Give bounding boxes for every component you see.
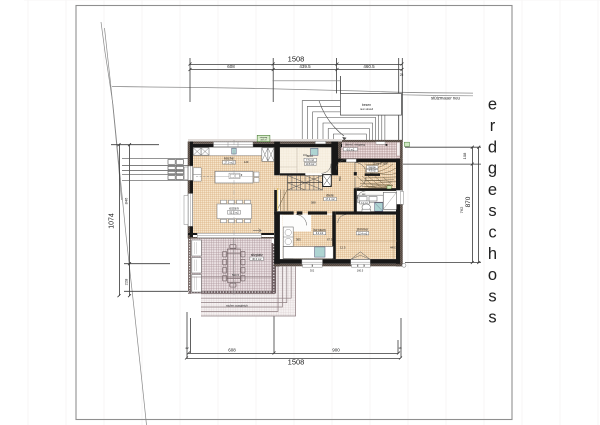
svg-text:4.9 m2: 4.9 m2 [369, 171, 377, 173]
svg-text:küche: küche [224, 157, 234, 161]
svg-text:ankl.: ankl. [307, 154, 314, 158]
svg-text:459.72: 459.72 [260, 140, 267, 142]
svg-text:s: s [488, 202, 496, 220]
svg-text:160.5: 160.5 [357, 269, 364, 273]
svg-text:treppe: treppe [369, 166, 377, 169]
svg-text:108: 108 [462, 152, 467, 159]
svg-text:900: 900 [332, 348, 340, 353]
svg-text:590.5: 590.5 [232, 273, 239, 277]
svg-text:608: 608 [227, 64, 235, 69]
svg-text:302: 302 [310, 269, 315, 273]
svg-text:870: 870 [465, 196, 472, 207]
svg-text:588: 588 [311, 200, 316, 204]
svg-text:raum abstell: raum abstell [360, 108, 373, 111]
svg-text:16: 16 [398, 346, 402, 350]
svg-text:überd. eingang: überd. eingang [345, 143, 365, 147]
svg-text:10.8 m2: 10.8 m2 [306, 163, 315, 166]
svg-text:305: 305 [296, 238, 301, 242]
svg-text:22: 22 [185, 346, 189, 350]
svg-text:e: e [488, 96, 497, 114]
svg-text:g: g [488, 160, 497, 178]
svg-text:9.2 m2: 9.2 m2 [316, 232, 324, 235]
svg-text:diele: diele [326, 193, 334, 197]
svg-text:1074: 1074 [109, 213, 116, 229]
svg-text:s: s [488, 287, 496, 305]
svg-text:sitzplatz: sitzplatz [251, 253, 263, 257]
svg-text:r: r [490, 117, 496, 135]
svg-text:27.0 m2: 27.0 m2 [224, 160, 234, 164]
svg-text:7.5 m2: 7.5 m2 [306, 158, 314, 162]
svg-text:448.5: 448.5 [390, 246, 397, 250]
svg-text:c: c [488, 224, 496, 242]
svg-text:460.5: 460.5 [363, 64, 375, 69]
svg-text:stufen ausgleich: stufen ausgleich [226, 303, 248, 307]
svg-text:e: e [488, 181, 497, 199]
svg-text:12.5: 12.5 [340, 246, 346, 250]
svg-text:s: s [488, 309, 496, 327]
svg-text:161: 161 [303, 154, 308, 157]
svg-text:17.4 m2: 17.4 m2 [325, 197, 335, 201]
svg-text:762: 762 [459, 206, 464, 213]
svg-text:550: 550 [338, 176, 342, 181]
svg-text:30.0 m2: 30.0 m2 [252, 257, 262, 261]
svg-text:d: d [488, 138, 497, 156]
svg-text:120: 120 [244, 160, 249, 164]
svg-text:1508: 1508 [288, 358, 305, 367]
svg-text:228: 228 [124, 278, 129, 285]
svg-text:o: o [488, 266, 497, 284]
svg-text:12.4 m2: 12.4 m2 [358, 231, 368, 235]
svg-text:1508: 1508 [288, 55, 305, 64]
svg-text:6.0 m2: 6.0 m2 [347, 148, 355, 151]
svg-text:25: 25 [400, 73, 404, 77]
svg-text:zimmer: zimmer [357, 228, 370, 232]
svg-text:besen: besen [362, 103, 371, 107]
svg-text:608: 608 [228, 348, 236, 353]
svg-text:52.5 m2: 52.5 m2 [229, 210, 239, 214]
svg-text:67.5: 67.5 [327, 238, 333, 242]
svg-text:h: h [488, 245, 497, 263]
svg-text:439.5: 439.5 [299, 64, 311, 69]
svg-text:stützmauer neu: stützmauer neu [431, 96, 461, 101]
svg-text:846: 846 [124, 197, 129, 204]
svg-text:hw raum: hw raum [313, 228, 326, 232]
